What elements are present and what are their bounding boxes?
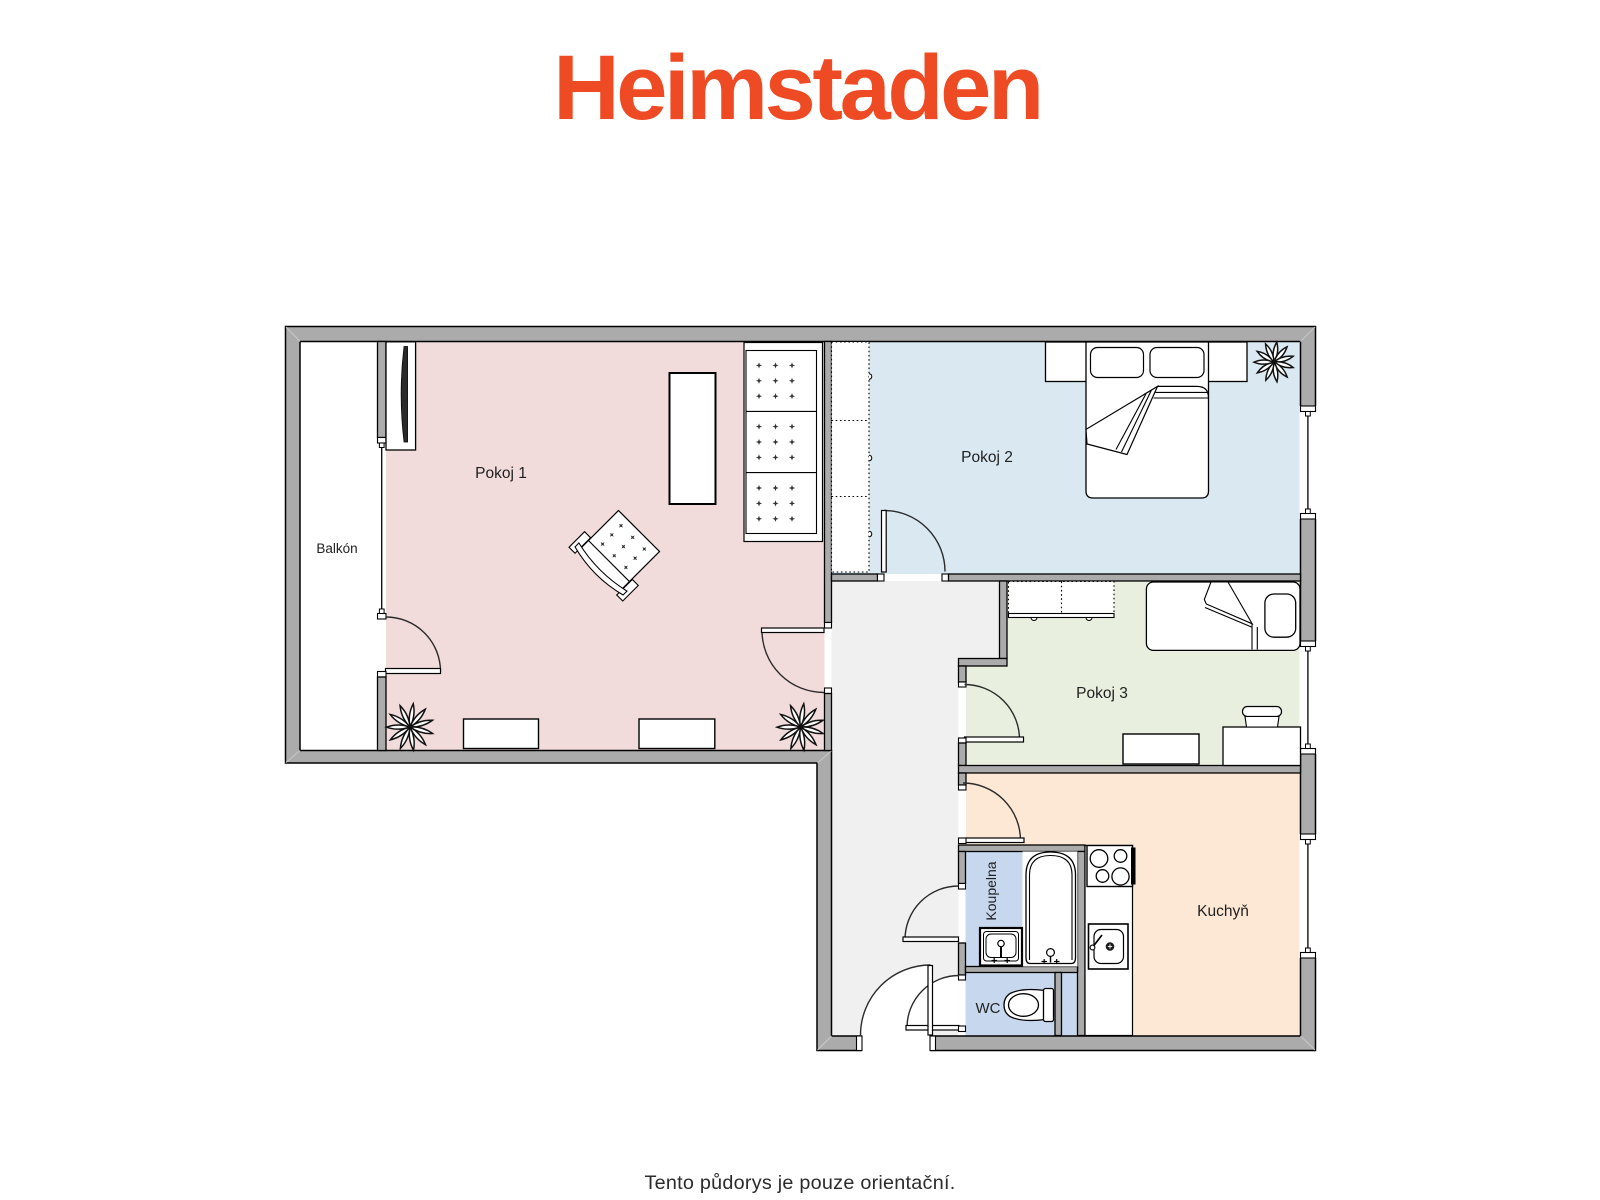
- svg-text:Koupelna: Koupelna: [983, 861, 999, 920]
- svg-text:Pokoj 1: Pokoj 1: [475, 465, 527, 482]
- svg-text:Pokoj 2: Pokoj 2: [961, 449, 1013, 466]
- svg-text:Pokoj 3: Pokoj 3: [1076, 685, 1128, 702]
- svg-text:Balkón: Balkón: [316, 541, 357, 556]
- svg-text:WC: WC: [976, 1000, 1001, 1017]
- svg-text:Kuchyň: Kuchyň: [1197, 903, 1249, 920]
